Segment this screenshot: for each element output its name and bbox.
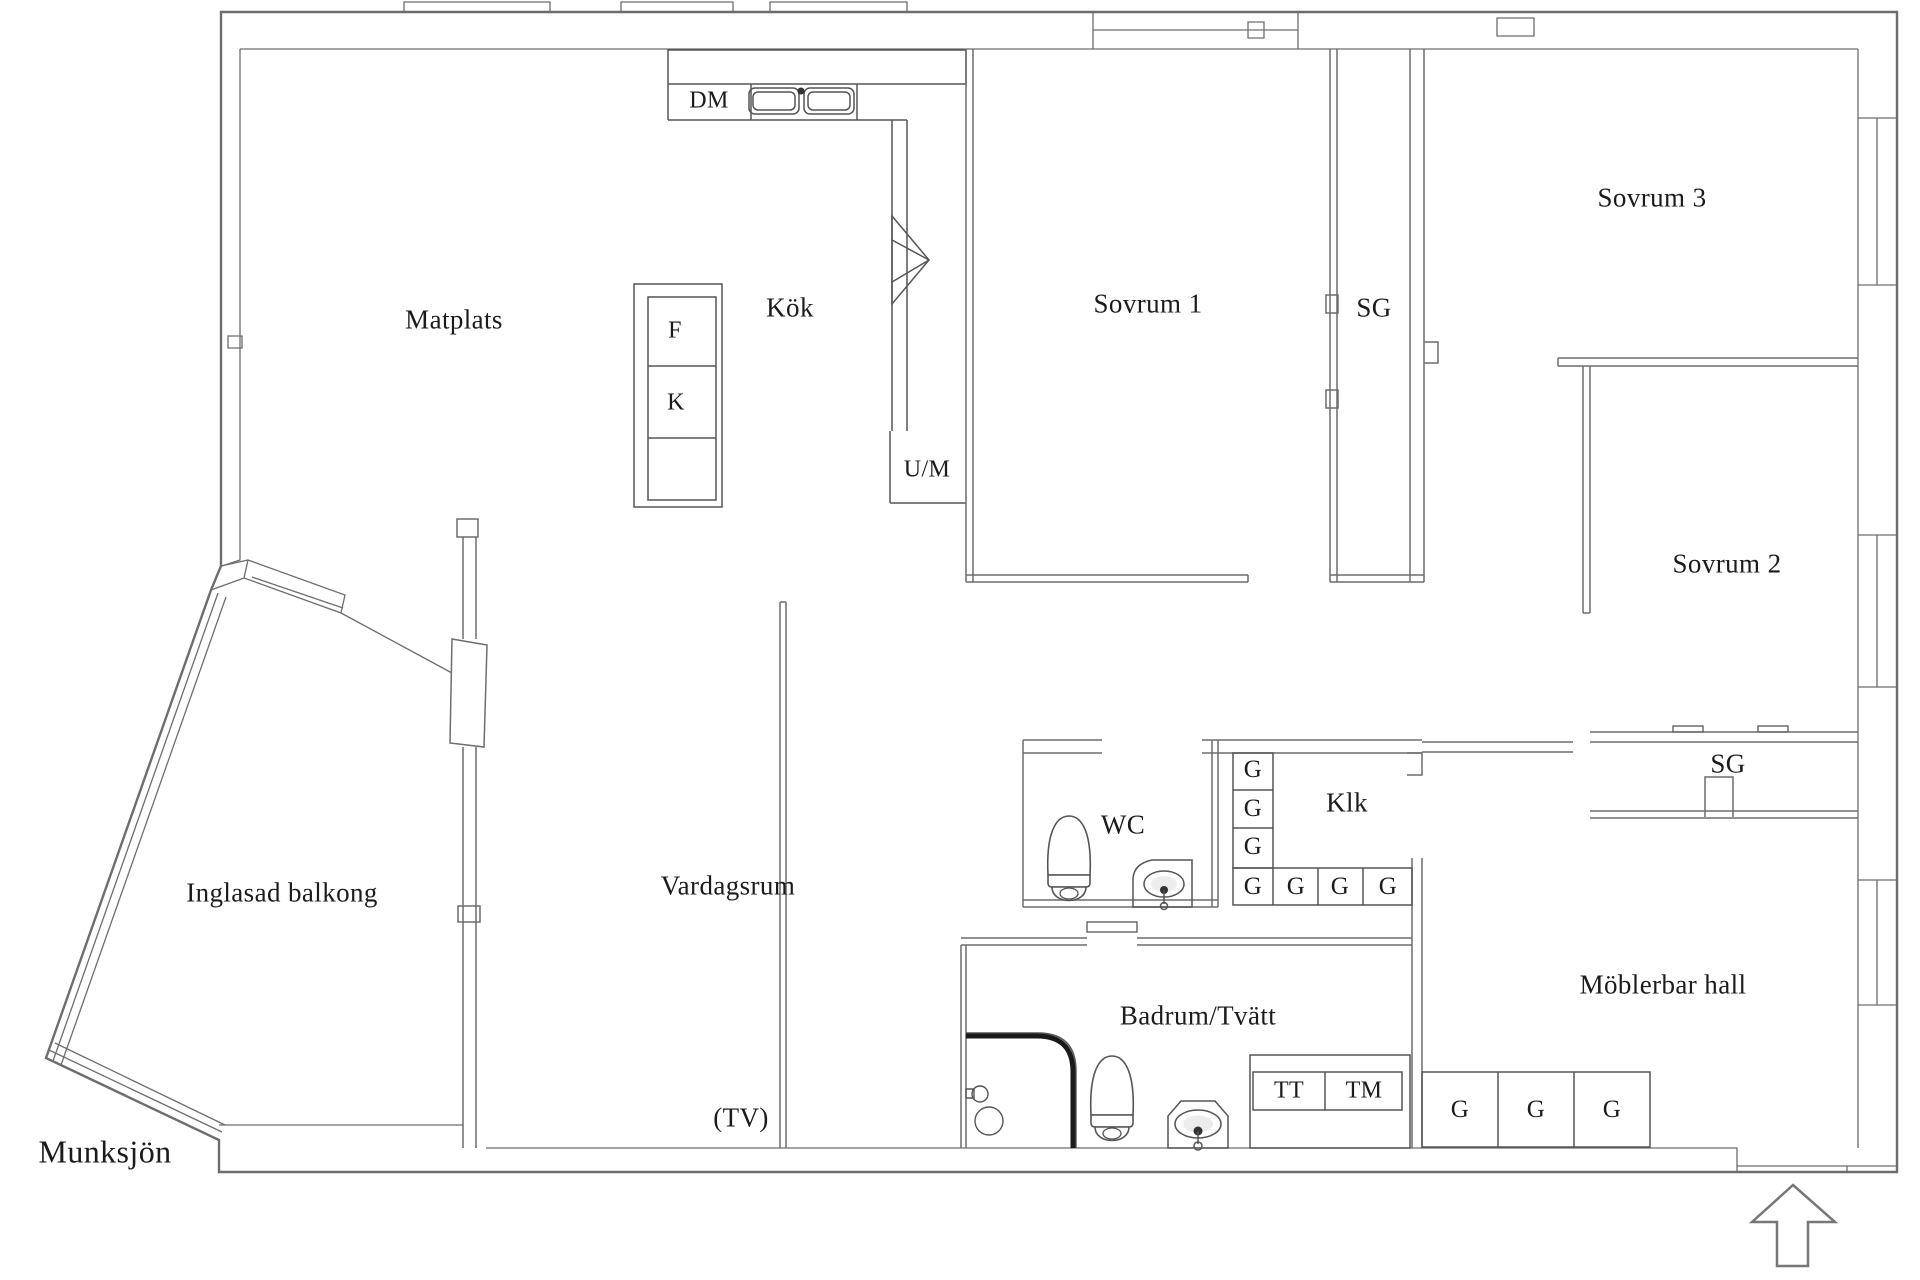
dishwasher-label: DM: [689, 88, 728, 115]
room-label-hall: Möblerbar hall: [1580, 970, 1747, 1001]
freezer-label: K: [667, 390, 685, 417]
bedroom2-3-walls: [1558, 358, 1858, 818]
room-label-sg-right: SG: [1710, 749, 1745, 780]
room-label-badrum: Badrum/Tvätt: [1120, 1001, 1276, 1032]
wc-basin-icon: [1133, 860, 1192, 910]
balcony-glazing: [49, 560, 452, 1132]
wc-toilet-icon: [1048, 816, 1091, 901]
wardrobe-label: G: [1244, 756, 1262, 784]
wardrobe-label: G: [1244, 873, 1262, 901]
north-arrow-icon: [1752, 1185, 1835, 1266]
room-label-sg-top: SG: [1356, 293, 1391, 324]
room-label-sovrum3: Sovrum 3: [1598, 183, 1707, 214]
wc-klk-walls: [780, 602, 1573, 1148]
wall-inner-edges: [219, 49, 1897, 1172]
shower-icon: [966, 1033, 1076, 1148]
tv-note-label: (TV): [713, 1103, 769, 1134]
room-label-sovrum1: Sovrum 1: [1094, 289, 1203, 320]
room-label-wc: WC: [1101, 810, 1145, 841]
kitchen-fittings: [634, 50, 966, 507]
wardrobe-label: G: [1244, 833, 1262, 861]
wardrobe-label: G: [1244, 795, 1262, 823]
bathroom-toilet-icon: [1091, 1056, 1134, 1141]
washer-label: TM: [1346, 1078, 1383, 1105]
wardrobe-label: G: [1603, 1096, 1621, 1124]
wardrobe-label: G: [1451, 1096, 1469, 1124]
fridge-label: F: [668, 318, 682, 345]
dryer-label: TT: [1274, 1078, 1304, 1105]
um-label: U/M: [904, 457, 951, 484]
floor-plan-page: Matplats Kök Sovrum 1 SG Sovrum 3 Sovrum…: [0, 0, 1920, 1280]
bathroom-walls: [961, 938, 1412, 1148]
room-label-matplats: Matplats: [405, 305, 503, 336]
wardrobe-label: G: [1379, 873, 1397, 901]
balcony-wall: [450, 519, 487, 1148]
room-label-klk: Klk: [1326, 788, 1368, 819]
wardrobe-label: G: [1527, 1096, 1545, 1124]
room-label-vardagsrum: Vardagsrum: [661, 871, 795, 902]
room-label-kok: Kök: [766, 293, 814, 324]
wardrobe-label: G: [1331, 873, 1349, 901]
lake-label-munksjon: Munksjön: [39, 1134, 172, 1171]
kitchen-sink-icon: [749, 88, 854, 115]
room-label-balkong: Inglasad balkong: [186, 878, 378, 909]
corner-cabinet-icon: [892, 216, 929, 304]
wardrobe-label: G: [1287, 873, 1305, 901]
room-label-sovrum2: Sovrum 2: [1673, 549, 1782, 580]
bathroom-basin-icon: [1168, 1101, 1228, 1150]
